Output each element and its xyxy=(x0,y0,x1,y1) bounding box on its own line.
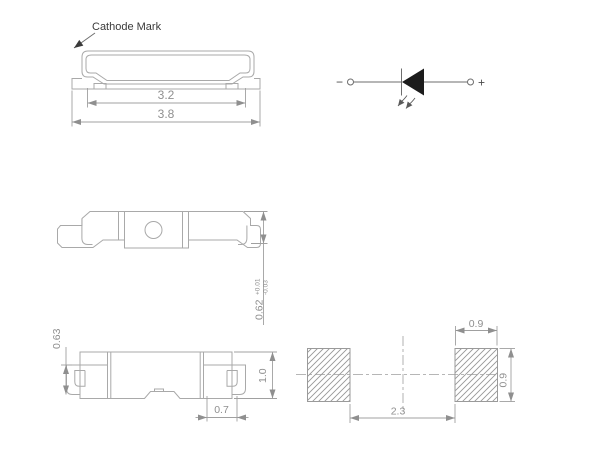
terminal-node-right xyxy=(468,79,474,85)
light-ray-icon xyxy=(398,96,407,107)
cathode-mark-leader-arrow xyxy=(74,33,95,48)
dimension-pad-width-0-9: 0.9 xyxy=(456,318,498,346)
dimension-text: 2.3 xyxy=(391,406,406,418)
center-hole-circle xyxy=(145,222,162,239)
dimension-text: 0.7 xyxy=(214,404,229,416)
gate-mark-notch xyxy=(155,389,164,392)
diode-triangle-icon xyxy=(402,69,424,96)
lens-window-outline xyxy=(86,55,250,81)
dimension-text: 0.62 xyxy=(254,299,266,320)
tolerance-plus-text: +0.01 xyxy=(255,278,262,295)
bottom-view: 0.62 +0.01 -0.03 xyxy=(58,212,270,326)
left-lead-fold-line xyxy=(82,219,93,245)
dimension-pad-height-0-9: 0.9 xyxy=(498,349,516,402)
dimension-0-7: 0.7 xyxy=(196,396,249,422)
solder-pad-right xyxy=(455,349,498,402)
dimension-text: 3.8 xyxy=(158,107,175,121)
dimension-0-62: 0.62 +0.01 -0.03 xyxy=(244,212,269,326)
cathode-mark-label: Cathode Mark xyxy=(92,21,162,33)
dimension-3-2: 3.2 xyxy=(88,88,246,108)
package-body-outline xyxy=(82,51,254,84)
light-ray-icon xyxy=(406,98,415,109)
dimension-0-63: 0.63 xyxy=(51,328,72,394)
dimension-1-0: 1.0 xyxy=(234,352,277,399)
plus-terminal-label: + xyxy=(478,76,485,90)
dimension-text: 1.0 xyxy=(257,368,269,383)
tolerance-minus-text: -0.03 xyxy=(262,280,269,295)
solder-pad-left xyxy=(308,349,351,402)
terminal-node-left xyxy=(348,79,354,85)
right-lead-outline xyxy=(204,365,246,395)
minus-terminal-label: − xyxy=(336,75,343,89)
drawing-canvas: Cathode Mark 3.2 3.8 − + xyxy=(0,0,614,452)
dimension-gap-2-3: 2.3 xyxy=(350,404,455,423)
solder-pad-layout: 0.9 0.9 2.3 xyxy=(296,318,515,423)
dimension-text: 0.9 xyxy=(469,318,484,330)
left-lead-outline xyxy=(67,365,108,395)
led-package-drawing: Cathode Mark 3.2 3.8 − + xyxy=(0,0,614,452)
dimension-text: 0.63 xyxy=(51,328,63,349)
dimension-text: 0.9 xyxy=(498,373,510,388)
led-schematic-symbol: − + xyxy=(336,69,485,109)
bottom-view-outline xyxy=(58,212,261,249)
top-view: Cathode Mark 3.2 3.8 xyxy=(72,21,260,127)
front-view: 0.63 1.0 0.7 xyxy=(51,328,277,421)
dimension-text: 3.2 xyxy=(158,88,175,102)
